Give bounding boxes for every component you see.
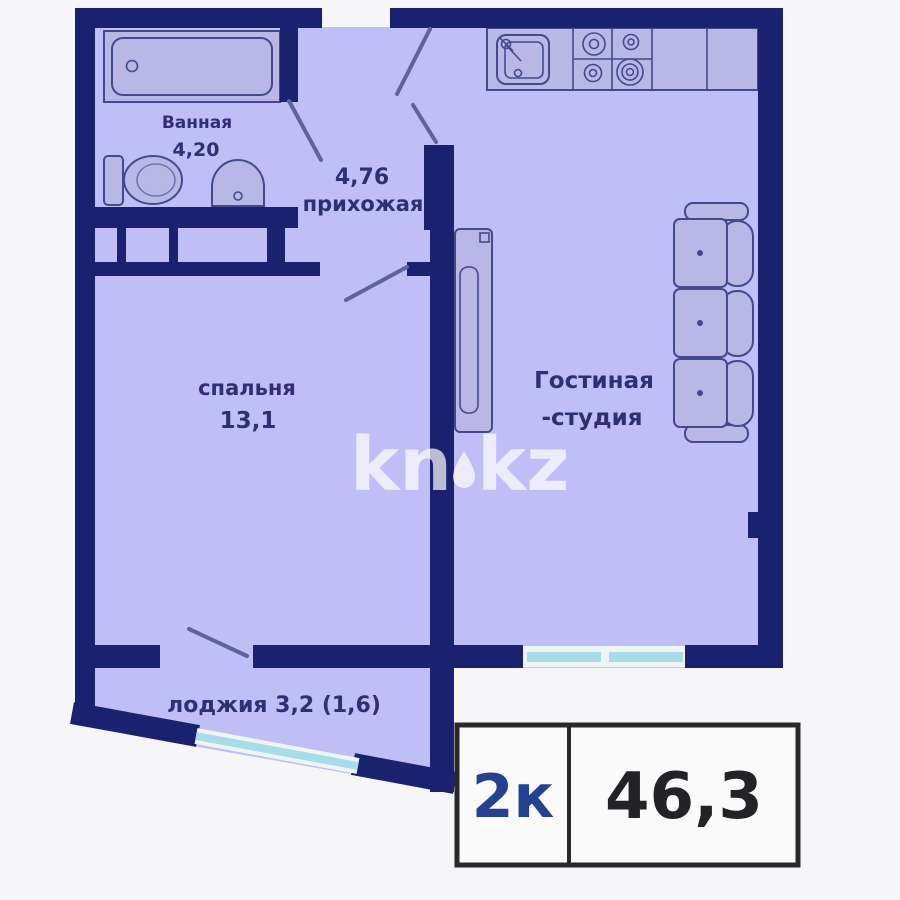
wall-segment bbox=[95, 262, 320, 276]
bathroom-area: 4,20 bbox=[173, 139, 220, 161]
wall-segment bbox=[253, 645, 432, 668]
wall-segment bbox=[452, 645, 523, 668]
hallway-label: прихожая bbox=[303, 192, 424, 216]
wall-segment bbox=[390, 8, 783, 28]
badge-total-area: 46,3 bbox=[605, 760, 763, 834]
floor-plan: Ванная 4,20 4,76 прихожая спальня 13,1 Г… bbox=[0, 0, 900, 900]
wall-segment bbox=[75, 8, 322, 28]
kitchen-counter bbox=[487, 28, 758, 90]
bathtub-icon bbox=[104, 31, 280, 102]
bathroom-sink-icon bbox=[212, 160, 264, 206]
wardrobe-icon bbox=[455, 229, 492, 432]
loggia-label: лоджия 3,2 (1,6) bbox=[167, 693, 381, 718]
wall-segment bbox=[95, 207, 298, 228]
wall-segment bbox=[758, 8, 783, 668]
sofa-icon bbox=[674, 203, 753, 442]
living-room-window bbox=[523, 646, 685, 667]
watermark-left: kn bbox=[350, 422, 452, 508]
bedroom-label: спальня bbox=[198, 376, 296, 400]
hallway-area: 4,76 bbox=[335, 165, 389, 190]
watermark-right: kz bbox=[477, 422, 569, 508]
toilet-icon bbox=[104, 156, 182, 205]
bedroom-area: 13,1 bbox=[220, 408, 277, 434]
wall-segment bbox=[748, 512, 758, 538]
badge-rooms-count: 2к bbox=[472, 762, 554, 832]
area-badge: 2к 46,3 bbox=[457, 725, 798, 865]
wall-segment bbox=[280, 28, 298, 102]
wall-segment bbox=[95, 645, 160, 668]
wall-segment bbox=[75, 8, 95, 722]
entrance-notch bbox=[322, 0, 390, 27]
wall-segment bbox=[685, 645, 783, 668]
wall-segment bbox=[407, 262, 432, 276]
bathroom-label: Ванная bbox=[162, 113, 232, 133]
living-room-label-line1: Гостиная bbox=[534, 368, 654, 394]
